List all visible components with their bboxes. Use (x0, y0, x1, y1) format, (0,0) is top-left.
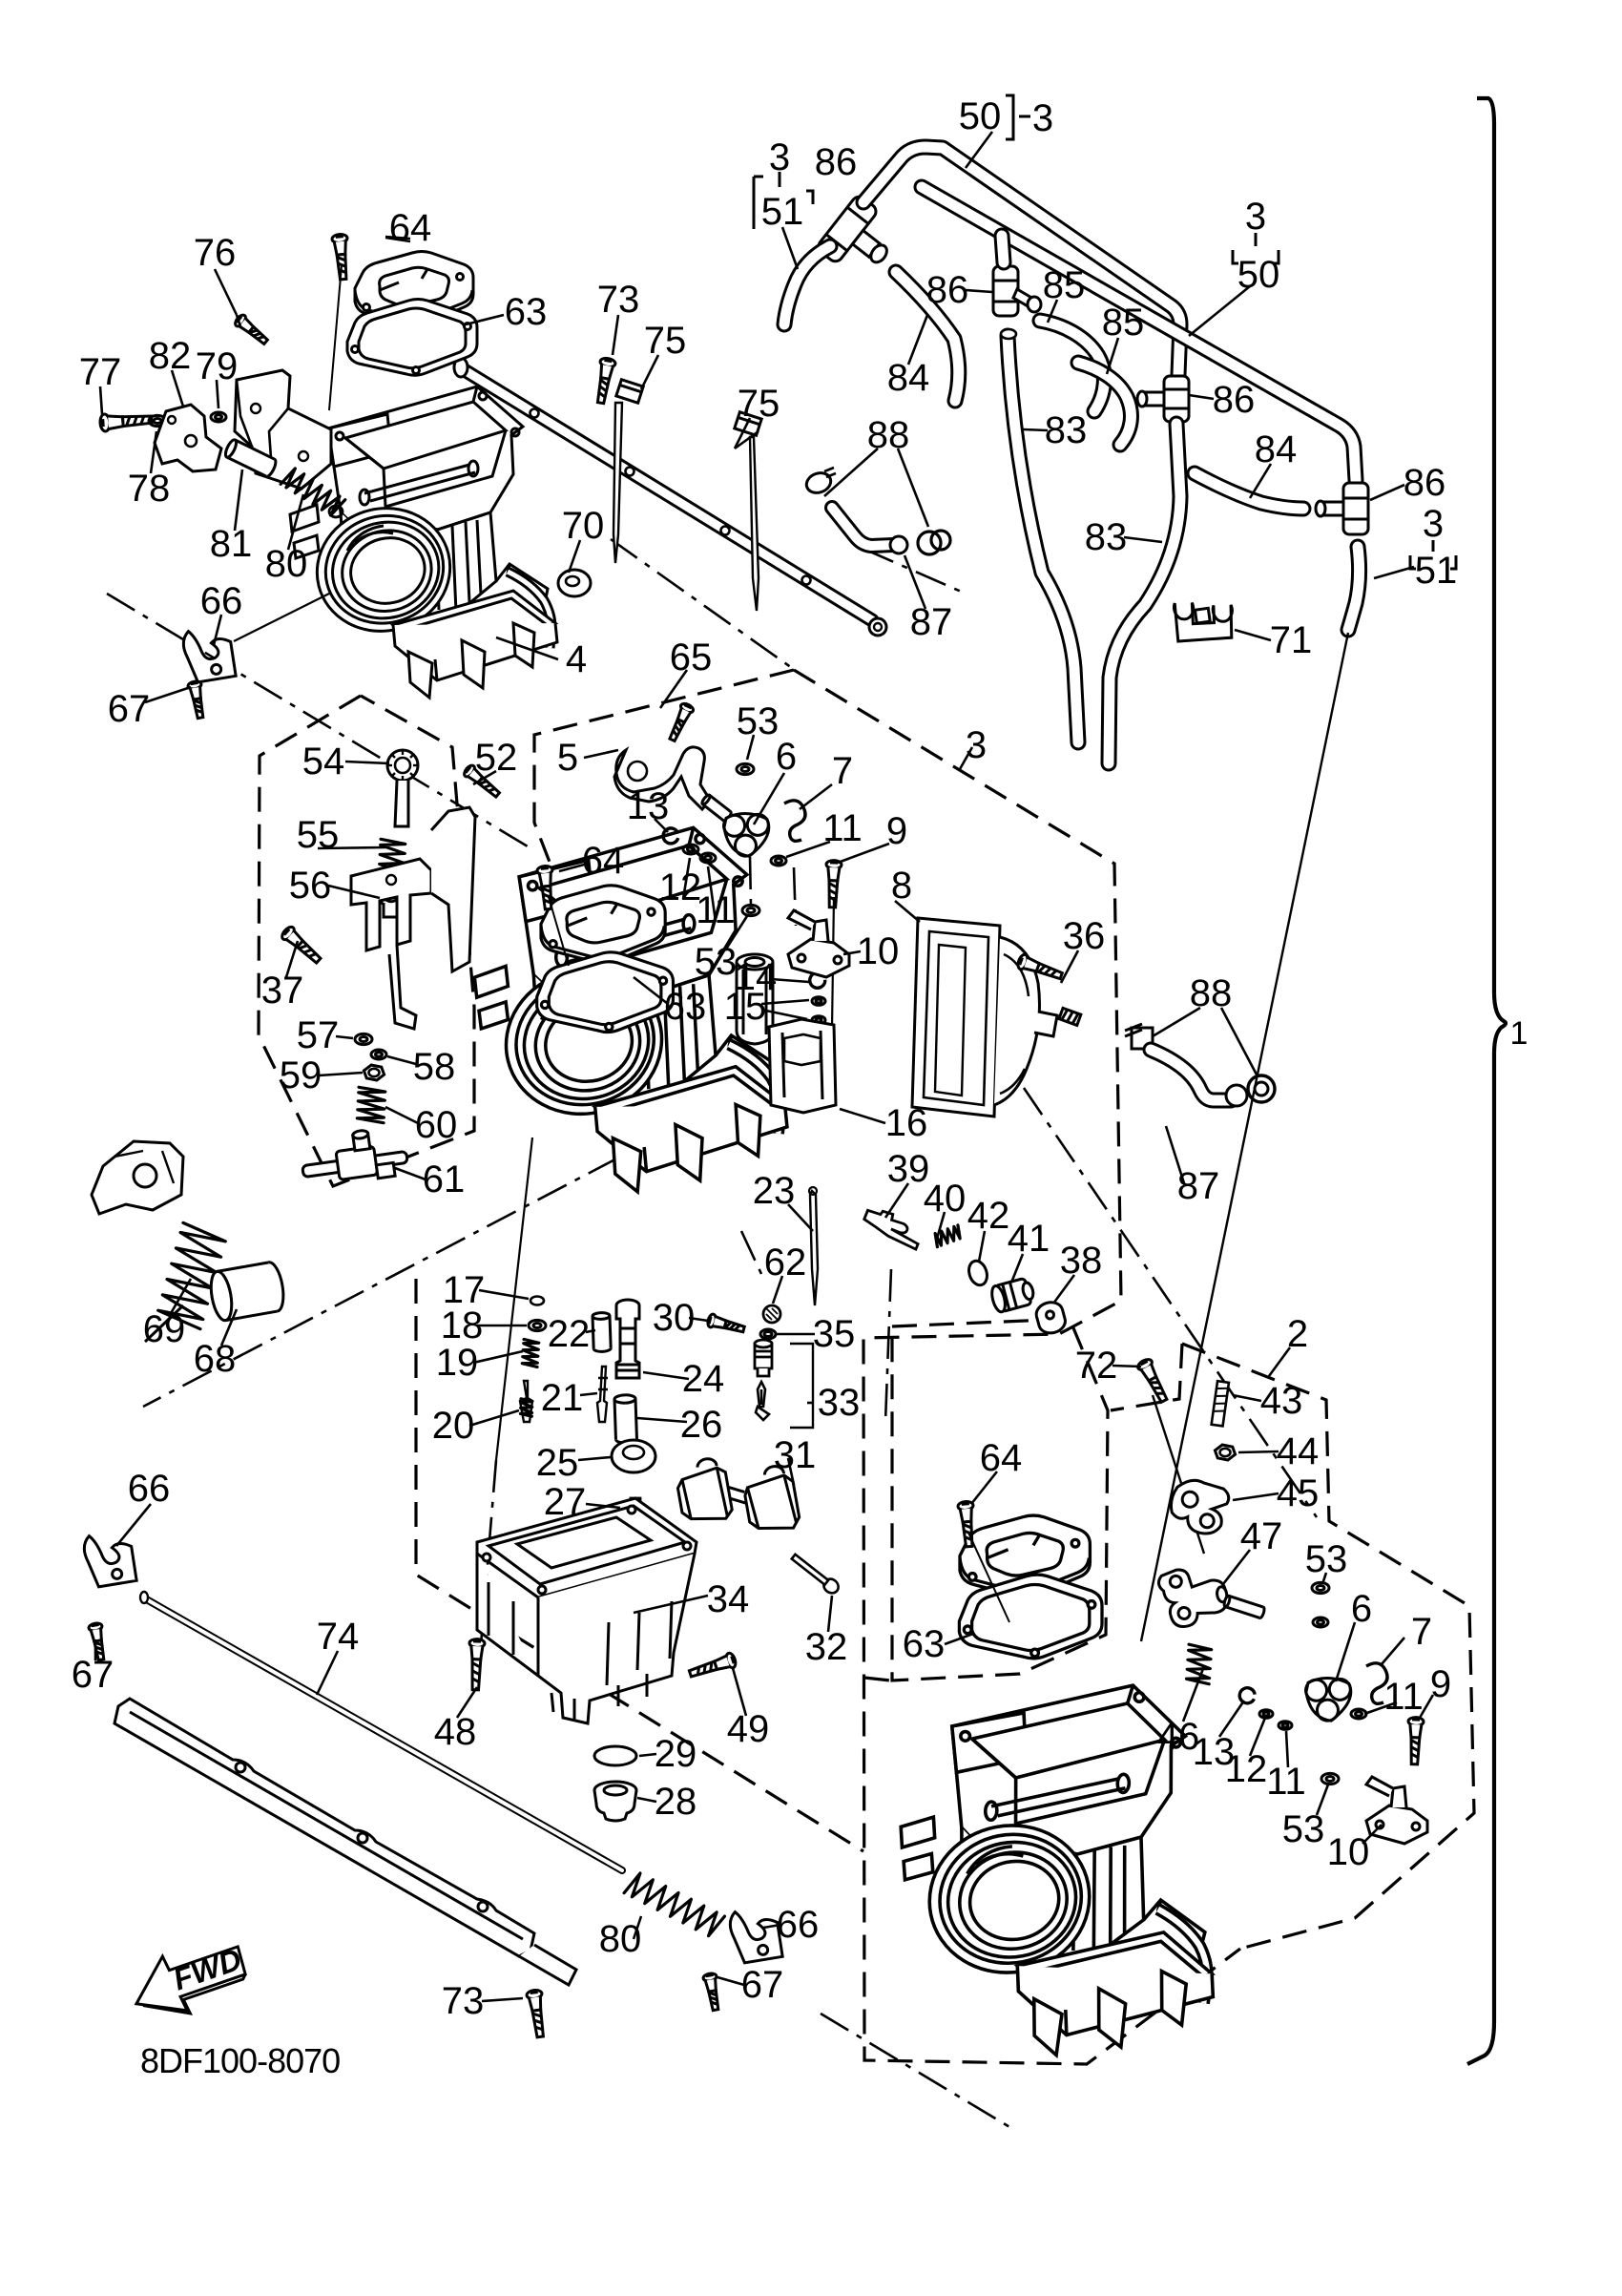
svg-text:66: 66 (777, 1904, 820, 1946)
svg-text:63: 63 (505, 291, 548, 333)
svg-text:4: 4 (566, 638, 587, 680)
svg-text:85: 85 (1043, 264, 1086, 306)
svg-text:37: 37 (261, 970, 304, 1012)
svg-text:64: 64 (389, 207, 432, 249)
svg-text:77: 77 (79, 351, 122, 393)
svg-text:72: 72 (1075, 1345, 1118, 1387)
svg-text:74: 74 (317, 1616, 360, 1658)
svg-text:81: 81 (210, 523, 253, 565)
svg-text:61: 61 (423, 1158, 466, 1200)
svg-text:62: 62 (764, 1242, 807, 1284)
svg-text:24: 24 (682, 1358, 725, 1400)
svg-text:80: 80 (599, 1918, 642, 1960)
svg-text:66: 66 (128, 1468, 171, 1510)
svg-text:83: 83 (1085, 516, 1128, 558)
svg-text:79: 79 (196, 345, 239, 387)
svg-text:6: 6 (1351, 1588, 1372, 1630)
svg-text:64: 64 (582, 840, 625, 882)
svg-text:41: 41 (1008, 1218, 1050, 1260)
svg-text:36: 36 (1063, 915, 1106, 957)
svg-text:88: 88 (1190, 972, 1233, 1014)
svg-text:73: 73 (597, 279, 640, 321)
svg-text:7: 7 (832, 750, 853, 792)
svg-text:10: 10 (857, 930, 900, 972)
svg-text:3: 3 (966, 724, 987, 766)
svg-text:83: 83 (1045, 409, 1088, 451)
svg-text:53: 53 (695, 941, 738, 983)
svg-text:3: 3 (1423, 503, 1444, 545)
svg-text:34: 34 (707, 1578, 750, 1620)
svg-text:73: 73 (442, 1980, 485, 2022)
svg-text:3: 3 (1245, 196, 1266, 238)
svg-text:23: 23 (753, 1170, 796, 1212)
svg-text:71: 71 (1270, 619, 1313, 661)
svg-text:86: 86 (926, 269, 969, 311)
svg-text:60: 60 (415, 1104, 458, 1146)
svg-text:53: 53 (1282, 1808, 1325, 1850)
svg-text:15: 15 (724, 986, 767, 1028)
svg-text:66: 66 (200, 580, 243, 622)
svg-text:59: 59 (280, 1054, 322, 1096)
svg-text:82: 82 (149, 335, 192, 377)
svg-text:64: 64 (980, 1437, 1023, 1479)
svg-text:3: 3 (1032, 97, 1053, 139)
svg-text:67: 67 (72, 1654, 114, 1696)
svg-text:21: 21 (541, 1377, 584, 1419)
svg-text:84: 84 (1255, 428, 1298, 470)
svg-text:11: 11 (1383, 1676, 1424, 1718)
svg-text:8DF100-8070: 8DF100-8070 (140, 2041, 340, 2080)
svg-text:10: 10 (1327, 1831, 1370, 1873)
svg-text:27: 27 (544, 1481, 587, 1523)
svg-text:33: 33 (818, 1382, 861, 1424)
svg-text:5: 5 (557, 737, 578, 779)
svg-text:47: 47 (1240, 1515, 1283, 1557)
svg-text:44: 44 (1277, 1430, 1320, 1472)
svg-text:1: 1 (1510, 1015, 1528, 1052)
svg-text:50: 50 (1237, 254, 1280, 296)
svg-text:9: 9 (886, 810, 907, 852)
svg-text:6: 6 (776, 736, 797, 778)
svg-text:22: 22 (548, 1313, 591, 1355)
svg-text:57: 57 (297, 1014, 340, 1056)
svg-text:53: 53 (1305, 1538, 1348, 1580)
svg-text:29: 29 (655, 1733, 697, 1775)
svg-text:55: 55 (297, 814, 340, 856)
svg-text:12: 12 (1225, 1748, 1268, 1790)
svg-text:48: 48 (434, 1711, 477, 1753)
svg-text:13: 13 (627, 785, 670, 827)
svg-text:68: 68 (194, 1338, 237, 1380)
svg-text:42: 42 (967, 1195, 1010, 1237)
svg-text:8: 8 (891, 865, 912, 907)
svg-text:25: 25 (536, 1442, 579, 1484)
svg-text:40: 40 (924, 1178, 967, 1220)
svg-text:18: 18 (441, 1305, 484, 1346)
svg-text:87: 87 (1177, 1165, 1220, 1207)
svg-text:11: 11 (1266, 1761, 1306, 1803)
svg-text:51: 51 (761, 191, 804, 233)
svg-text:84: 84 (887, 357, 930, 399)
svg-text:70: 70 (562, 505, 605, 547)
svg-text:26: 26 (680, 1404, 723, 1446)
svg-text:58: 58 (413, 1046, 456, 1088)
svg-text:19: 19 (436, 1342, 479, 1384)
svg-text:63: 63 (664, 986, 707, 1028)
svg-text:20: 20 (432, 1405, 475, 1447)
svg-text:30: 30 (653, 1297, 696, 1339)
svg-text:51: 51 (1415, 550, 1458, 592)
svg-text:16: 16 (885, 1102, 928, 1144)
svg-text:38: 38 (1060, 1240, 1103, 1282)
svg-text:35: 35 (813, 1313, 856, 1355)
svg-text:53: 53 (737, 700, 780, 742)
svg-text:2: 2 (1287, 1313, 1308, 1355)
svg-text:28: 28 (655, 1781, 697, 1823)
svg-text:86: 86 (1404, 462, 1446, 504)
svg-text:63: 63 (903, 1623, 946, 1665)
svg-text:43: 43 (1260, 1380, 1303, 1422)
svg-text:78: 78 (128, 468, 171, 510)
svg-text:87: 87 (910, 601, 953, 643)
svg-text:80: 80 (265, 543, 308, 585)
svg-text:9: 9 (1430, 1663, 1451, 1705)
svg-text:75: 75 (644, 320, 687, 362)
svg-text:67: 67 (741, 1964, 784, 2006)
svg-text:50: 50 (959, 95, 1002, 137)
svg-text:88: 88 (867, 414, 910, 456)
svg-text:45: 45 (1277, 1472, 1320, 1514)
svg-text:86: 86 (1213, 379, 1256, 421)
svg-text:75: 75 (738, 383, 780, 425)
svg-text:67: 67 (108, 688, 151, 730)
svg-text:54: 54 (302, 741, 345, 783)
svg-text:11: 11 (696, 889, 736, 931)
svg-text:7: 7 (1411, 1611, 1432, 1653)
svg-text:86: 86 (815, 141, 858, 183)
svg-text:11: 11 (822, 807, 863, 849)
svg-text:32: 32 (805, 1626, 848, 1668)
svg-text:31: 31 (774, 1434, 817, 1476)
svg-text:85: 85 (1102, 302, 1145, 344)
svg-text:52: 52 (475, 737, 518, 779)
svg-text:56: 56 (289, 865, 332, 907)
svg-text:65: 65 (670, 637, 713, 678)
svg-text:69: 69 (143, 1308, 186, 1350)
svg-text:76: 76 (194, 232, 237, 274)
svg-text:49: 49 (727, 1708, 770, 1750)
